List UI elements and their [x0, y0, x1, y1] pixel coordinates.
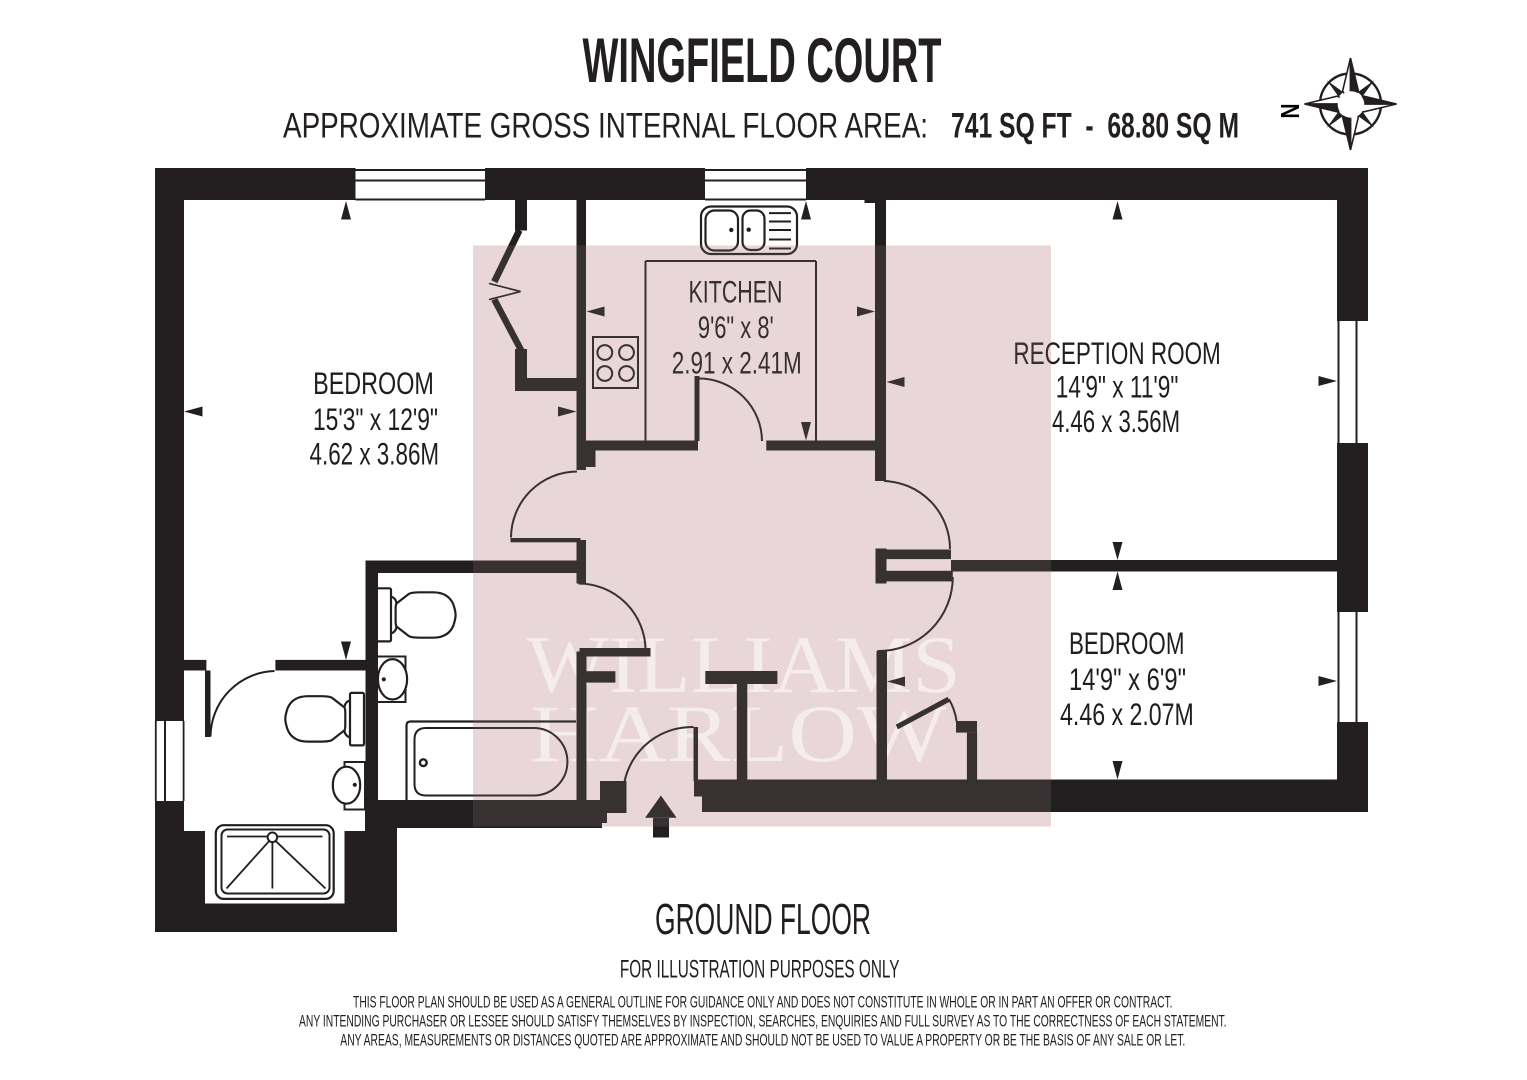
svg-text:THIS FLOOR PLAN SHOULD BE USED: THIS FLOOR PLAN SHOULD BE USED AS A GENE…	[353, 993, 1173, 1011]
svg-text:14'9" x 11'9": 14'9" x 11'9"	[1056, 369, 1179, 405]
svg-text:WINGFIELD COURT: WINGFIELD COURT	[583, 26, 942, 96]
svg-text:FOR ILLUSTRATION PURPOSES ONLY: FOR ILLUSTRATION PURPOSES ONLY	[620, 956, 900, 984]
svg-text:4.46 x 3.56M: 4.46 x 3.56M	[1052, 403, 1180, 439]
svg-text:BEDROOM: BEDROOM	[313, 365, 434, 401]
svg-text:ANY AREAS, MEASUREMENTS OR DIS: ANY AREAS, MEASUREMENTS OR DISTANCES QUO…	[340, 1031, 1185, 1049]
svg-text:ANY INTENDING PURCHASER OR LES: ANY INTENDING PURCHASER OR LESSEE SHOULD…	[299, 1012, 1227, 1030]
svg-text:4.46 x 2.07M: 4.46 x 2.07M	[1060, 696, 1194, 732]
svg-text:14'9" x 6'9": 14'9" x 6'9"	[1069, 661, 1186, 697]
svg-text:BEDROOM: BEDROOM	[1069, 625, 1185, 661]
svg-text:15'3" x 12'9": 15'3" x 12'9"	[313, 401, 438, 437]
svg-text:GROUND FLOOR: GROUND FLOOR	[655, 895, 871, 944]
svg-text:741 SQ FT - 68.80 SQ M: 741 SQ FT - 68.80 SQ M	[951, 107, 1239, 146]
svg-text:4.62 x 3.86M: 4.62 x 3.86M	[310, 435, 440, 471]
svg-text:APPROXIMATE GROSS INTERNAL FLO: APPROXIMATE GROSS INTERNAL FLOOR AREA:	[283, 107, 928, 146]
svg-text:N: N	[1275, 104, 1305, 119]
